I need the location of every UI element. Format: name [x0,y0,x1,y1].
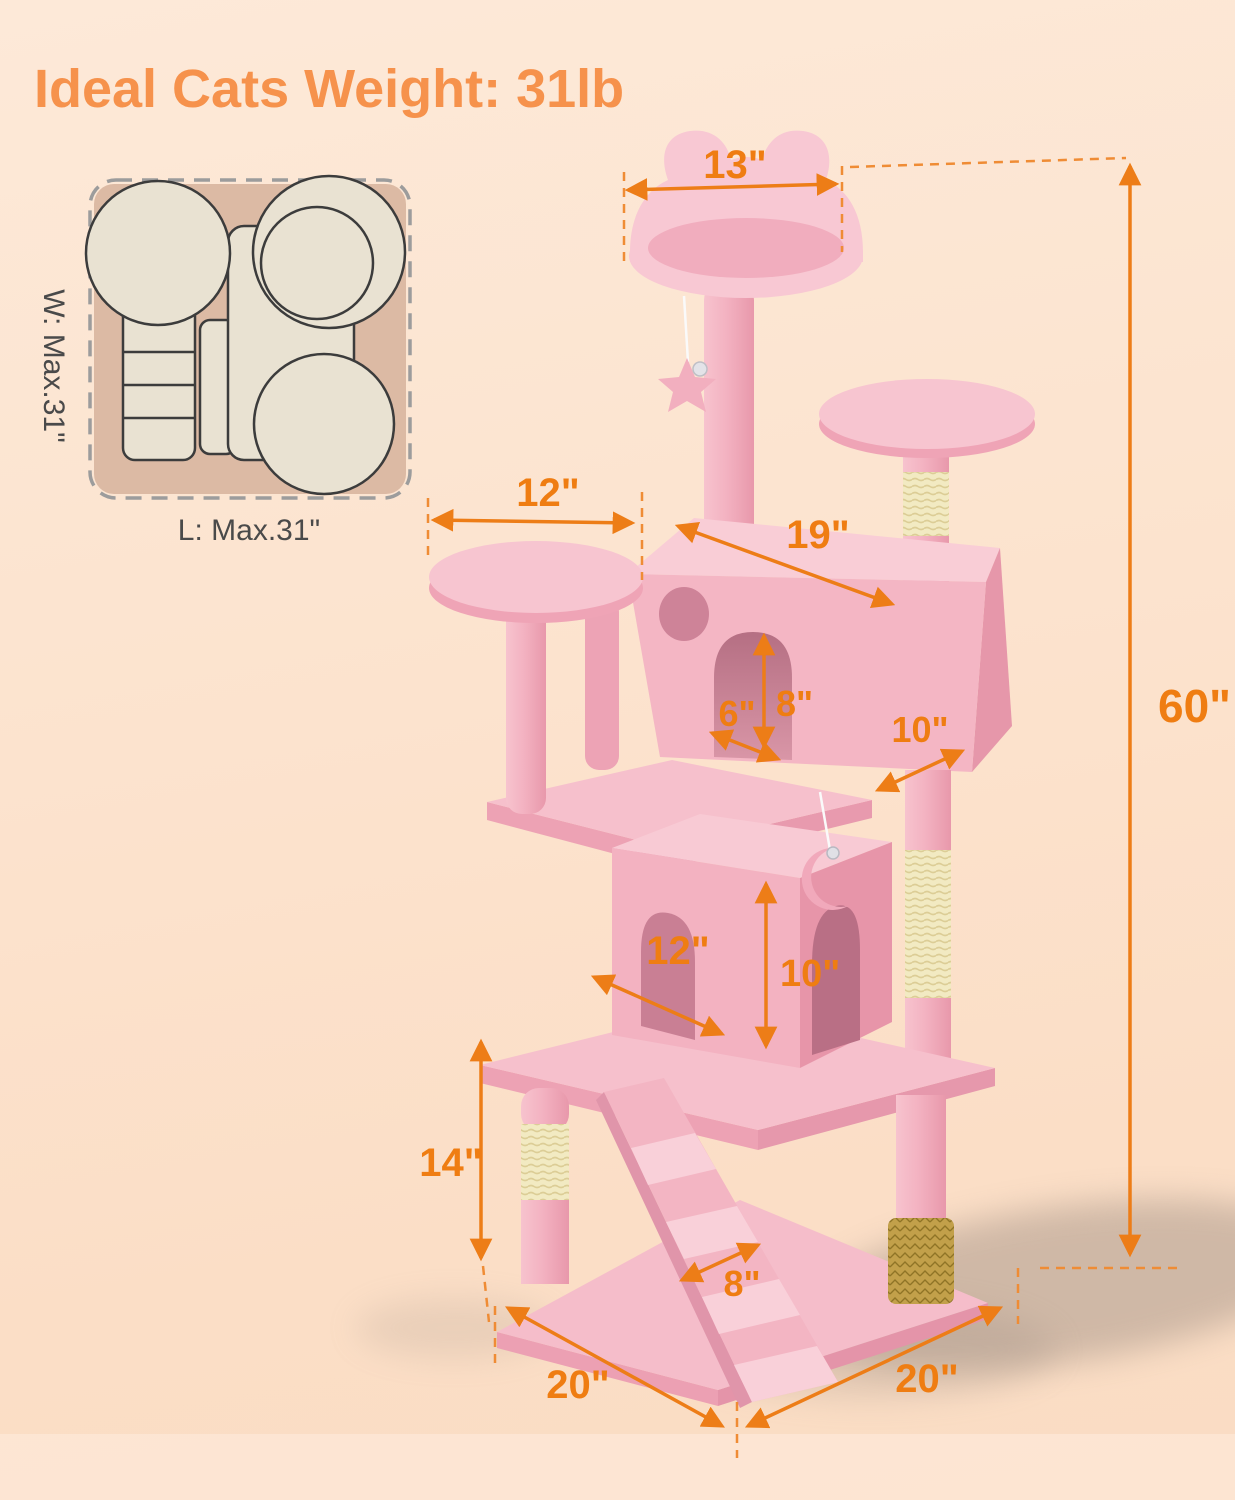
guide-line [850,158,1126,167]
footprint-diagram: W: Max.31" L: Max.31" [37,176,410,547]
dim-arrow-left-platform-width [434,520,632,523]
platform-top [429,541,643,613]
scene: W: Max.31" L: Max.31" [0,0,1235,1500]
dim-label-door-height: 8" [776,683,813,724]
left-platform-rear-post [585,598,619,770]
footprint-length-label: L: Max.31" [178,514,320,547]
condo-peep-hole [659,587,709,641]
footprint-platform-topview [254,354,394,494]
dim-label-lower-post-height: 14" [419,1141,482,1185]
footprint-width-label: W: Max.31" [37,289,70,442]
post-segment [905,770,951,856]
dim-label-lower-condo-height: 10" [780,953,840,995]
dim-label-condo-depth: 10" [891,709,948,750]
post-segment [896,1095,946,1225]
bottom-left-post [521,1088,569,1284]
dim-label-door-width: 6" [718,693,755,734]
upper-left-platform [429,541,643,623]
dim-label-top-perch-width: 13" [703,143,766,187]
bottom-right-post [888,1095,954,1304]
cat-tree-illustration [429,131,1035,1408]
star-toy-string [684,296,688,362]
dim-label-ramp-width: 8" [723,1263,760,1304]
left-platform-front-post [506,600,546,814]
dim-label-base-length: 20" [546,1363,609,1407]
dim-label-lower-condo-width: 12" [646,929,709,973]
self-groomer-brush [888,1218,954,1304]
sisal-scratching-post [521,1124,569,1204]
sisal-scratching-post [905,850,951,1002]
product-dimension-infographic: Ideal Cats Weight: 31lb [0,0,1235,1500]
top-perch-cushion [648,218,844,278]
star-toy-bell [693,362,707,376]
post-segment [521,1200,569,1284]
dim-label-condo-length: 19" [786,513,849,557]
platform-top [819,379,1035,449]
footprint-perch-inner-rim [261,207,373,319]
footprint-platform-topview [86,181,230,325]
dim-label-left-platform-width: 12" [516,471,579,515]
dim-label-base-depth: 20" [895,1357,958,1401]
moon-toy-bell [827,847,839,859]
right-middle-post [905,770,951,1078]
sisal-scratching-post [903,472,949,538]
dim-label-total-height: 60" [1158,680,1231,732]
